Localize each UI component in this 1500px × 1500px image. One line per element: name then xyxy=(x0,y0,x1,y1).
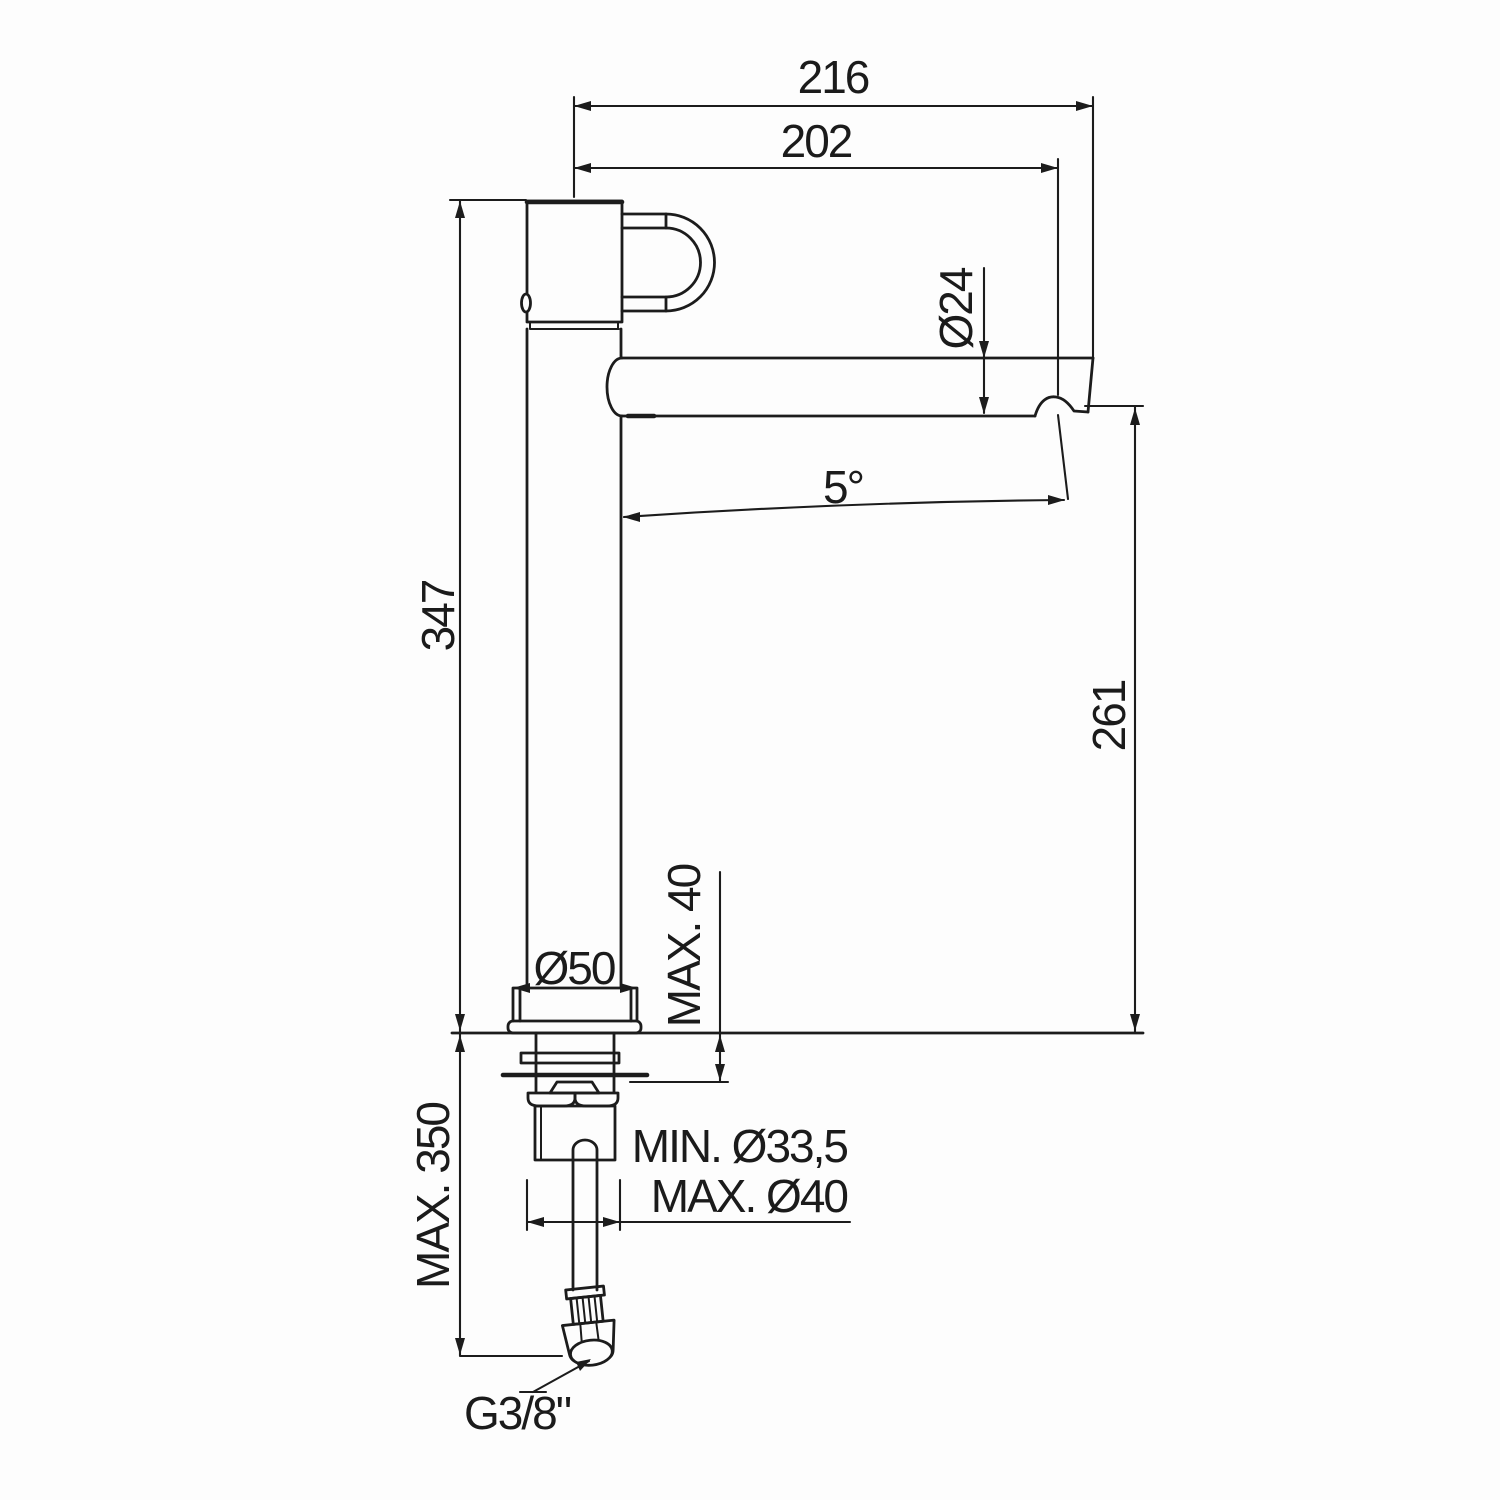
spout xyxy=(607,358,1093,416)
dim-label-spout-diameter: Ø24 xyxy=(930,267,982,349)
base-mounting xyxy=(508,988,641,1033)
handle-inner-arc xyxy=(666,228,701,297)
dim-max350-lines xyxy=(460,1034,562,1356)
dim-label-max-hose-length: MAX. 350 xyxy=(407,1103,459,1289)
hose-cap xyxy=(573,1140,597,1160)
handle-upper-bar xyxy=(622,214,666,228)
arrowhead-right-icon xyxy=(1048,495,1065,505)
arrowhead-up-icon xyxy=(1130,408,1140,425)
dimension-mounting-hole: MIN. Ø33,5 MAX. Ø40 xyxy=(527,1120,850,1230)
spout-root-fillet xyxy=(607,358,622,416)
dimension-spout-diameter: Ø24 xyxy=(930,267,989,414)
dim-label-min-hole-diameter: MIN. Ø33,5 xyxy=(632,1120,848,1172)
base-flange xyxy=(508,1021,641,1033)
arrowhead-down-icon xyxy=(1130,1014,1140,1031)
fitting-crimp-sleeve xyxy=(571,1295,604,1324)
handle-loop xyxy=(622,214,715,311)
arrowhead-left-icon xyxy=(574,101,591,111)
drain-rod-guide xyxy=(550,1082,599,1093)
arrowhead-up-icon xyxy=(455,201,465,218)
faucet-dimension-drawing: 216 202 Ø24 5° 347 xyxy=(0,0,1500,1500)
angle-reference-line xyxy=(1058,415,1068,499)
callout-connection: G3/8" xyxy=(464,1359,591,1439)
arrowhead-left-icon xyxy=(513,983,530,993)
fixing-set xyxy=(503,1033,647,1160)
dimension-347: 347 xyxy=(412,200,526,1032)
dimensions: 216 202 Ø24 5° 347 xyxy=(407,51,1143,1439)
supply-hose xyxy=(573,1140,597,1290)
handle-lower-bar xyxy=(622,297,666,311)
hose-fitting xyxy=(559,1285,619,1368)
technical-drawing-page: 216 202 Ø24 5° 347 xyxy=(0,0,1500,1500)
dim-label-overall-reach: 216 xyxy=(798,51,869,103)
dim-label-max-deck-thickness: MAX. 40 xyxy=(658,864,710,1027)
arrowhead-right-icon xyxy=(620,983,637,993)
dim-label-supply-connection: G3/8" xyxy=(464,1387,571,1439)
arrowhead-left-icon xyxy=(623,512,640,522)
lock-nut-left xyxy=(528,1093,575,1106)
arrowhead-right-icon xyxy=(1076,101,1093,111)
arrowhead-right-icon xyxy=(603,1217,620,1227)
arrowhead-down-icon xyxy=(979,397,989,414)
dim-label-spout-inclination: 5° xyxy=(823,461,863,513)
connector-block xyxy=(535,1106,615,1160)
spout-end-face xyxy=(1088,358,1093,412)
dim-label-spout-height: 261 xyxy=(1083,680,1135,751)
dimension-base-diameter: Ø50 xyxy=(513,942,637,994)
head-side-pin xyxy=(522,294,531,312)
fitting-crimp-ribs xyxy=(577,1296,598,1324)
arrowhead-left-icon xyxy=(527,1217,544,1227)
arrowhead-down-icon xyxy=(455,1014,465,1031)
arrowhead-up-icon xyxy=(715,1035,725,1052)
lock-nut-right xyxy=(575,1093,618,1106)
dimension-hose-length: MAX. 350 xyxy=(407,1034,562,1356)
dim-label-spout-reach: 202 xyxy=(781,115,852,167)
dimension-261: 261 xyxy=(1083,406,1143,1032)
fitting-opening-ellipse xyxy=(569,1338,613,1367)
arrowhead-right-icon xyxy=(1041,163,1058,173)
arrowhead-up-icon xyxy=(455,1035,465,1052)
aerator-break-notch xyxy=(1035,397,1088,416)
arrowhead-down-icon xyxy=(715,1064,725,1081)
mixer-head-outline xyxy=(527,201,622,322)
dimension-deck-thickness: MAX. 40 xyxy=(630,864,728,1082)
hose-lines xyxy=(573,1160,597,1290)
dimension-angle-5deg: 5° xyxy=(623,415,1068,522)
arrowhead-down-icon xyxy=(455,1338,465,1355)
dim-label-base-diameter: Ø50 xyxy=(534,942,615,994)
arrowhead-left-icon xyxy=(574,163,591,173)
dim-label-max-hole-diameter: MAX. Ø40 xyxy=(651,1170,848,1222)
dim-202-lines xyxy=(574,159,1058,395)
dim-label-total-height: 347 xyxy=(412,580,464,651)
